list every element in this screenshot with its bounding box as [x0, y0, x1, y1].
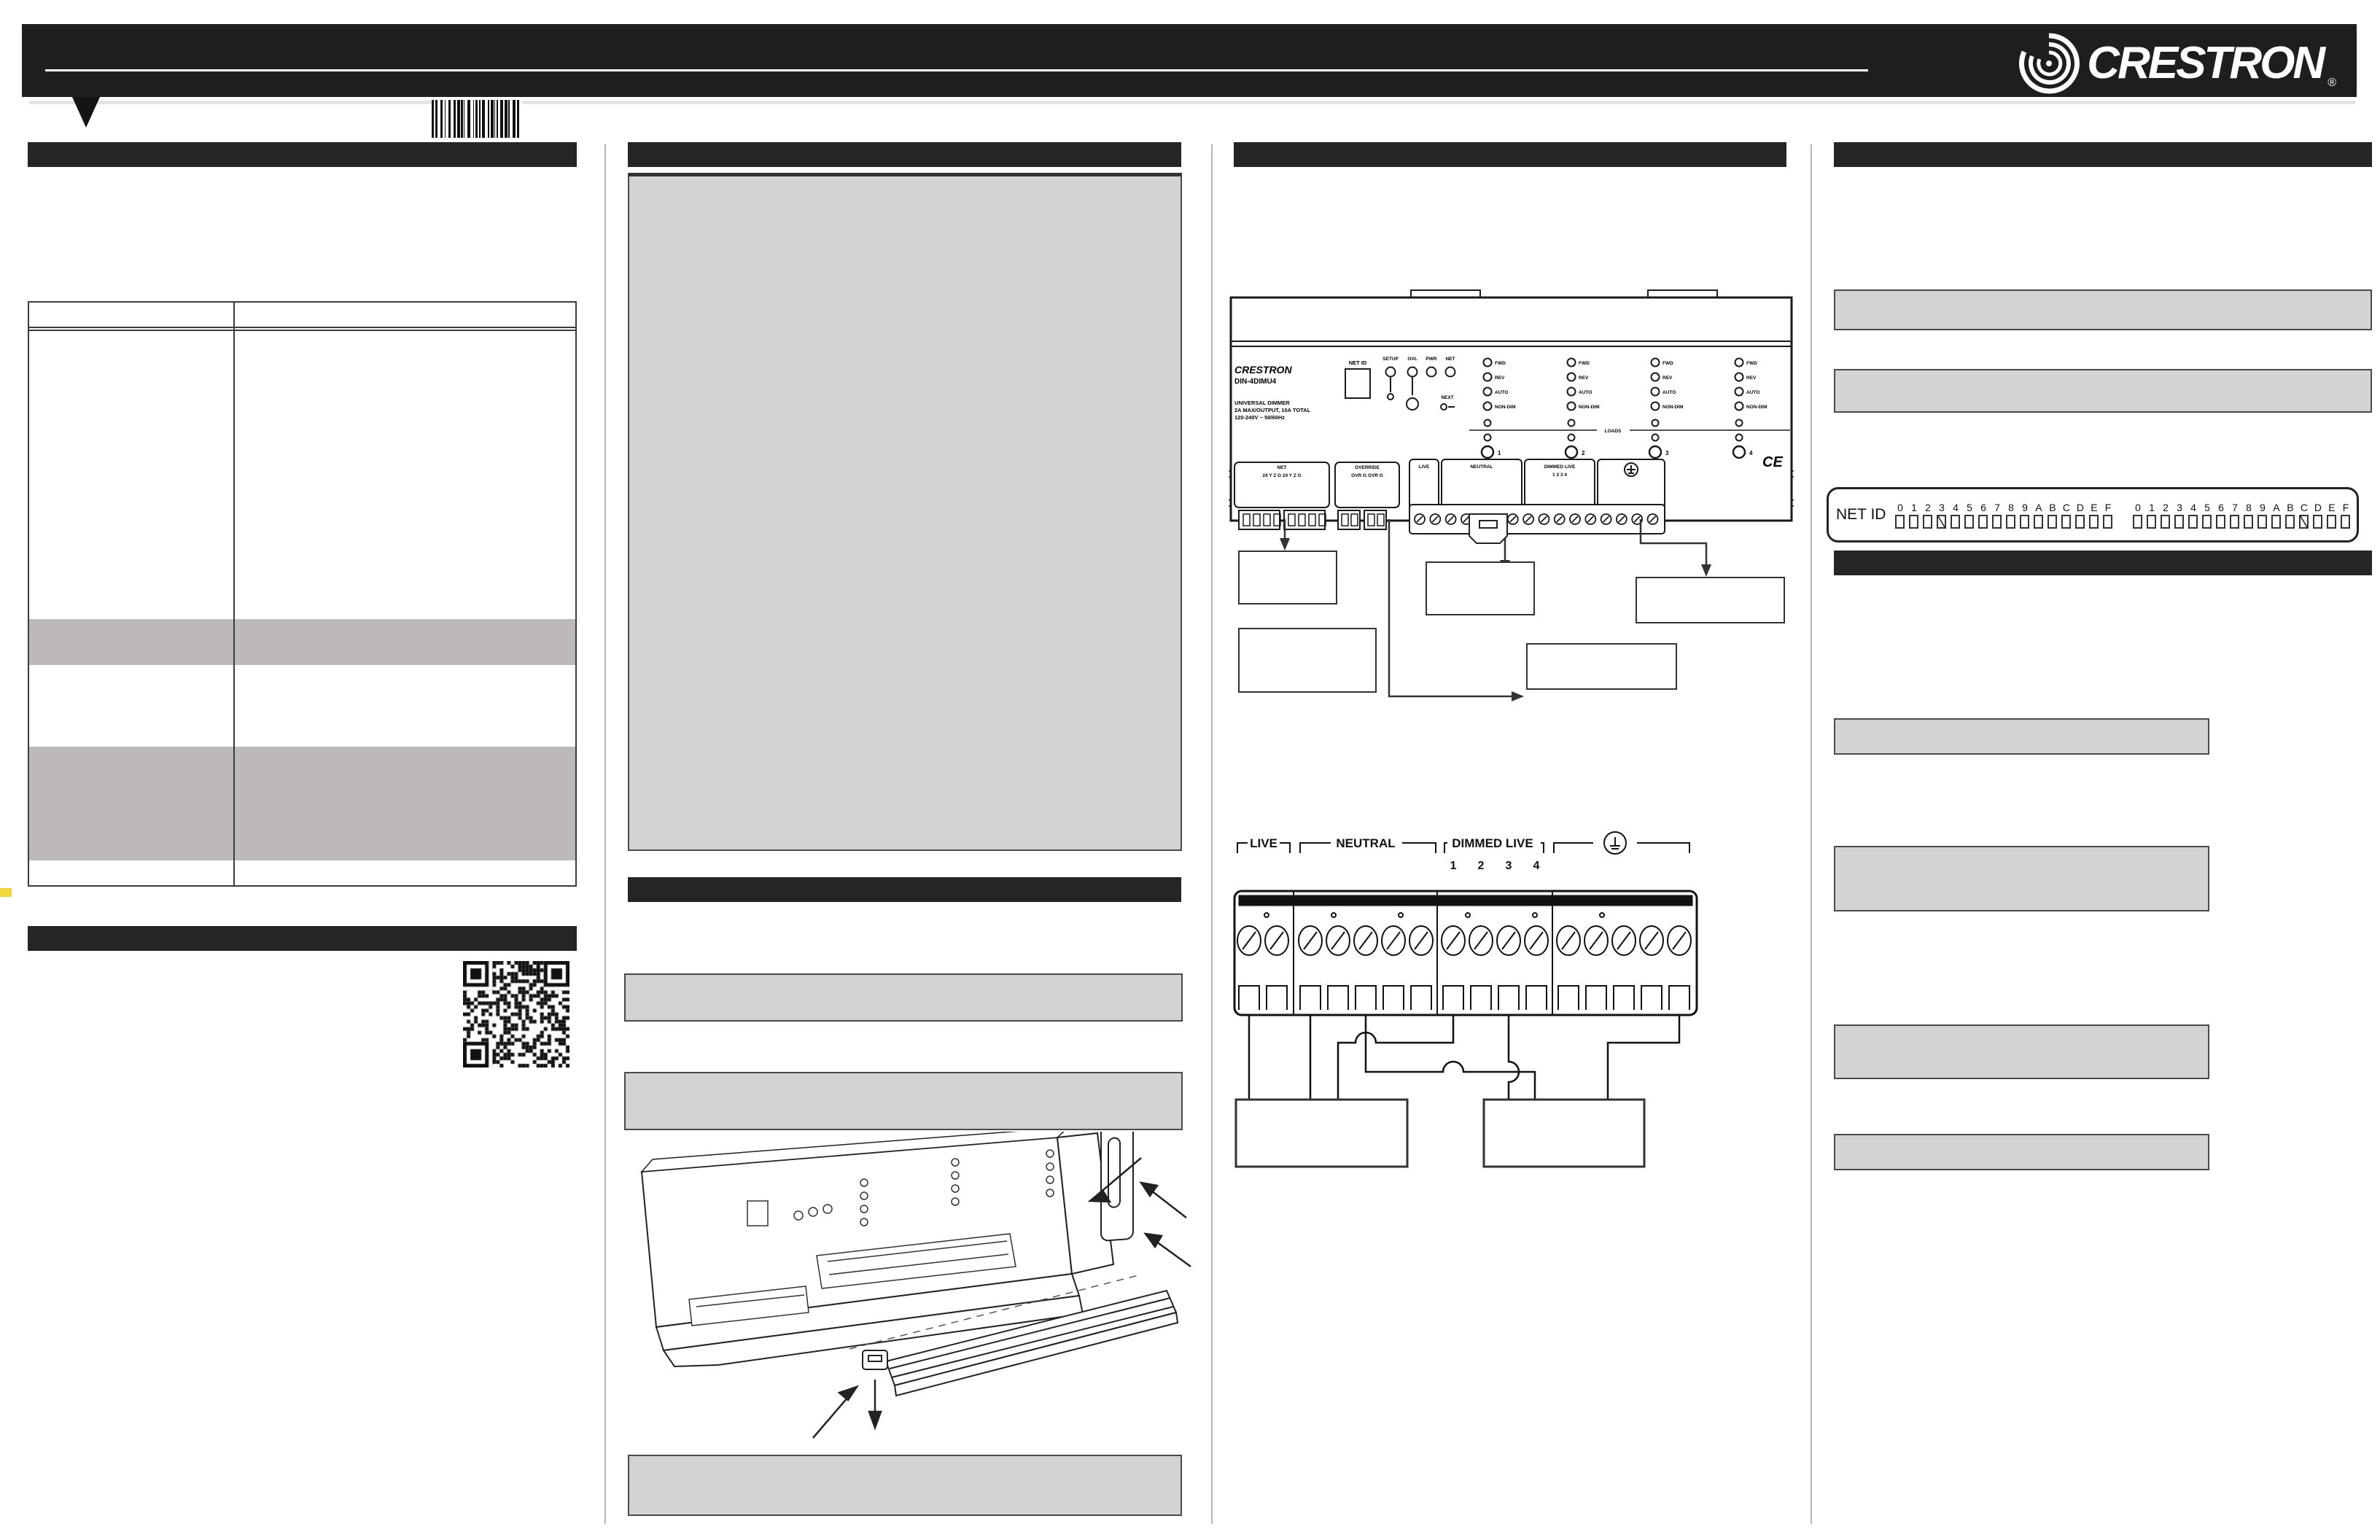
netid-hex-column: E — [2088, 502, 2099, 529]
terminal-live-label: LIVE — [1419, 464, 1430, 470]
netid-checkbox — [2188, 515, 2198, 529]
netid-hex-char: 2 — [2163, 502, 2169, 513]
netid-hex-column: 3 — [2174, 502, 2185, 529]
netid-checkbox — [2257, 515, 2267, 529]
netid-hex-char: 9 — [2022, 502, 2028, 513]
netid-checkbox — [2271, 515, 2281, 529]
netid-hex-column: A — [2033, 502, 2044, 529]
barcode-bar — [519, 100, 522, 138]
netid-checkbox — [2075, 515, 2085, 529]
section-header-installation — [628, 877, 1181, 902]
installation-note-box — [624, 1072, 1183, 1130]
netid-hex-column: 9 — [2019, 502, 2030, 529]
section-header-connections — [1234, 142, 1786, 167]
margin-highlight-mark — [0, 888, 12, 897]
netid-hex-column: D — [2074, 502, 2085, 529]
channel-led-label: REV — [1662, 376, 1673, 381]
terminal-net-pins: 24 Y Z G 24 Y Z G — [1262, 473, 1301, 478]
netid-checkbox — [1937, 515, 1946, 529]
netid-hex-char: C — [2063, 502, 2070, 513]
netid-hex-char: B — [2287, 502, 2293, 513]
channel-led-label: REV — [1495, 376, 1505, 381]
load-box-1 — [1236, 1100, 1407, 1167]
netid-hex-char: 2 — [1925, 502, 1931, 513]
column-divider — [1811, 144, 1812, 1524]
netid-hex-char: F — [2105, 502, 2112, 513]
netid-hex-column: 8 — [2005, 502, 2016, 529]
netid-hex-char: 8 — [2246, 502, 2252, 513]
table-header-row — [29, 303, 575, 331]
netid-hex-column: 4 — [1950, 502, 1961, 529]
section-header-safety — [628, 142, 1181, 167]
netid-checkbox — [1964, 515, 1974, 529]
netid-checkbox — [2341, 515, 2350, 529]
callout-box-mains — [1426, 561, 1535, 615]
channel-led-label: AUTO — [1579, 390, 1592, 395]
netid-checkbox — [2133, 515, 2142, 529]
faded-subtitle-line — [29, 101, 2355, 104]
netid-checkbox — [2006, 515, 2015, 529]
channel-led-label: NON-DIM — [1746, 405, 1767, 410]
section-header-troubleshooting — [1834, 551, 2372, 575]
netid-checkbox — [2299, 515, 2309, 529]
netid-hex-char: 1 — [2149, 502, 2155, 513]
terminal-override-label: OVERRIDE — [1355, 465, 1380, 470]
troubleshooting-note-box — [1834, 846, 2209, 911]
channel-number: 3 — [1665, 450, 1669, 456]
troubleshooting-note-box — [1834, 1134, 2209, 1170]
led-label-next: NEXT — [1441, 395, 1453, 400]
netid-checkbox — [2161, 515, 2170, 529]
netid-hex-char: 9 — [2260, 502, 2266, 513]
wiring-ch1: 1 — [1450, 860, 1457, 872]
panel-model: DIN-4DIMU4 — [1234, 378, 1277, 386]
column-divider — [604, 144, 606, 1524]
netid-checkbox — [2313, 515, 2322, 529]
channel-led-label: FWD — [1579, 361, 1590, 366]
netid-hex-column: 0 — [2132, 502, 2143, 529]
netid-hex-column: 0 — [1894, 502, 1905, 529]
netid-hex-column: B — [2047, 502, 2058, 529]
panel-netid-label: NET ID — [1349, 359, 1367, 366]
netid-hex-group-1: 0123456789ABCDEF — [1894, 502, 2113, 529]
netid-hex-column: 8 — [2243, 502, 2254, 529]
netid-hex-char: B — [2049, 502, 2056, 513]
netid-checkbox — [2089, 515, 2099, 529]
netid-checkbox — [1992, 515, 2002, 529]
netid-hex-column: 6 — [1977, 502, 1988, 529]
netid-checkbox — [2061, 515, 2071, 529]
channel-led-label: FWD — [1495, 361, 1506, 366]
table-row — [29, 665, 575, 747]
netid-hex-char: 7 — [1994, 502, 2000, 513]
netid-checkbox — [2327, 515, 2336, 529]
netid-hex-char: 3 — [1939, 502, 1945, 513]
terminal-dimmed-numbers: 1 2 3 4 — [1552, 472, 1567, 478]
wiring-dimmedlive-label: DIMMED LIVE — [1452, 836, 1533, 850]
netid-strip-label: NET ID — [1836, 506, 1886, 524]
channel-number: 1 — [1498, 450, 1501, 456]
netid-checkbox — [2202, 515, 2212, 529]
load-wiring-diagram: LIVE NEUTRAL DIMMED LIVE 1 2 3 4 — [1229, 824, 1739, 1189]
netid-hex-column: 7 — [1991, 502, 2002, 529]
setup-note-box — [1834, 289, 2372, 330]
ce-mark: CE — [1762, 454, 1783, 470]
netid-hex-char: 0 — [1897, 502, 1903, 513]
barcode — [432, 100, 577, 138]
netid-hex-column: C — [2298, 502, 2309, 529]
netid-hex-column: 1 — [1908, 502, 1919, 529]
channel-led-label: AUTO — [1662, 390, 1676, 395]
crestron-wordmark: CRESTRON — [2087, 33, 2323, 94]
netid-rotary-switch — [1345, 369, 1370, 398]
table-row — [29, 619, 575, 665]
section-header-resources — [28, 926, 577, 951]
netid-hex-char: D — [2314, 502, 2322, 513]
netid-hex-char: A — [2035, 502, 2042, 513]
setup-note-box — [1834, 369, 2372, 413]
callout-box-net — [1238, 551, 1337, 604]
netid-hex-column: 1 — [2146, 502, 2157, 529]
channel-led-label: NON-DIM — [1495, 405, 1516, 410]
wiring-ch4: 4 — [1533, 860, 1540, 872]
netid-hex-char: E — [2328, 502, 2335, 513]
netid-hex-column: F — [2340, 502, 2351, 529]
panel-line2: 2A MAX/OUTPUT, 10A TOTAL — [1234, 407, 1311, 413]
terminal-dimmedlive-label: DIMMED LIVE — [1544, 464, 1576, 470]
netid-checkbox — [1978, 515, 1988, 529]
channel-led-label: AUTO — [1495, 390, 1508, 395]
netid-checkbox — [1951, 515, 1960, 529]
netid-hex-char: 8 — [2008, 502, 2014, 513]
netid-hex-column: C — [2061, 502, 2072, 529]
terminal-net-label: NET — [1277, 465, 1287, 470]
wiring-ch3: 3 — [1506, 860, 1512, 872]
netid-hex-column: 4 — [2187, 502, 2198, 529]
terminal-neutral-label: NEUTRAL — [1470, 464, 1493, 470]
column-divider — [1211, 144, 1213, 1524]
top-banner: CRESTRON ® — [22, 24, 2357, 97]
netid-hex-column: D — [2312, 502, 2323, 529]
table-row — [29, 331, 575, 619]
table-column-divider — [233, 303, 235, 885]
din-rail-mounting-illustration — [631, 1132, 1196, 1449]
netid-hex-column: 5 — [1964, 502, 1975, 529]
loads-label: LOADS — [1605, 429, 1622, 434]
netid-hex-char: C — [2301, 502, 2308, 513]
netid-hex-column: E — [2326, 502, 2337, 529]
netid-hex-char: 7 — [2232, 502, 2238, 513]
channel-led-label: NON-DIM — [1579, 405, 1600, 410]
netid-hex-char: 0 — [2135, 502, 2141, 513]
netid-hex-char: E — [2091, 502, 2097, 513]
netid-hex-char: 4 — [2190, 502, 2196, 513]
section-header-setup — [1834, 142, 2372, 167]
crestron-logo: CRESTRON ® — [2015, 30, 2336, 97]
netid-checkbox — [1923, 515, 1932, 529]
netid-hex-char: A — [2273, 502, 2279, 513]
netid-hex-column: B — [2284, 502, 2295, 529]
netid-hex-column: 5 — [2201, 502, 2212, 529]
led-label-pwr: PWR — [1426, 357, 1436, 362]
usb-port-icon — [1469, 514, 1507, 543]
netid-hex-group-2: 0123456789ABCDEF — [2132, 502, 2351, 529]
led-label-net: NET — [1446, 357, 1455, 362]
netid-hex-column: 6 — [2215, 502, 2226, 529]
netid-hex-char: 6 — [1980, 502, 1986, 513]
netid-hex-column: F — [2102, 502, 2113, 529]
wiring-ch2: 2 — [1478, 860, 1485, 872]
netid-hex-column: A — [2271, 502, 2282, 529]
netid-checkbox — [2216, 515, 2225, 529]
netid-hex-char: 6 — [2218, 502, 2224, 513]
load-box-2 — [1484, 1100, 1644, 1167]
netid-hex-char: 5 — [1967, 502, 1972, 513]
qr-code — [463, 961, 569, 1067]
registered-trademark: ® — [2327, 77, 2336, 90]
netid-checkbox — [2285, 515, 2295, 529]
installation-note-box — [624, 973, 1183, 1022]
led-label-ovl: OVL — [1407, 357, 1417, 362]
wiring-live-label: LIVE — [1250, 836, 1277, 850]
netid-hex-char: 3 — [2177, 502, 2182, 513]
netid-hex-column: 2 — [2160, 502, 2171, 529]
netid-hex-column: 3 — [1936, 502, 1947, 529]
netid-hex-column: 7 — [2229, 502, 2240, 529]
callout-box-override — [1238, 628, 1377, 693]
panel-brand: CRESTRON — [1234, 364, 1292, 376]
mounting-note-box — [628, 1455, 1182, 1516]
netid-checkbox — [1895, 515, 1905, 529]
netid-checkbox — [2230, 515, 2239, 529]
netid-checkbox — [1909, 515, 1918, 529]
netid-record-strip: NET ID 0123456789ABCDEF 0123456789ABCDEF — [1827, 487, 2359, 542]
terminal-override-pins: OVR G OVR G — [1351, 473, 1383, 478]
netid-checkbox — [2020, 515, 2029, 529]
callout-box-usb — [1526, 643, 1677, 690]
netid-checkbox — [2174, 515, 2184, 529]
safety-notes-block — [628, 173, 1182, 851]
quickstart-guide-page: { "header": { "brand": "CRESTRON", "regi… — [0, 0, 2380, 1540]
led-label-setup: SETUP — [1382, 357, 1399, 362]
channel-led-label: REV — [1579, 376, 1589, 381]
netid-checkbox — [2147, 515, 2156, 529]
callout-box-loads — [1636, 577, 1785, 623]
panel-line3: 120-240V ~ 50/60Hz — [1234, 414, 1285, 421]
channel-led-label: NON-DIM — [1662, 405, 1684, 410]
channel-led-label: AUTO — [1746, 390, 1759, 395]
netid-checkbox — [2103, 515, 2112, 529]
crestron-swirl-icon — [2015, 30, 2082, 97]
front-panel-diagram: CRESTRON DIN-4DIMU4 UNIVERSAL DIMMER 2A … — [1229, 286, 1794, 541]
netid-hex-column: 2 — [1922, 502, 1933, 529]
down-arrow-marker — [72, 97, 100, 128]
netid-hex-column: 9 — [2257, 502, 2268, 529]
section-header-specifications — [28, 142, 577, 167]
channel-led-label: FWD — [1662, 361, 1673, 366]
wiring-neutral-label: NEUTRAL — [1336, 836, 1395, 850]
netid-checkbox — [2047, 515, 2057, 529]
netid-hex-char: 1 — [1911, 502, 1917, 513]
netid-hex-char: F — [2343, 502, 2349, 513]
channel-led-label: REV — [1746, 376, 1757, 381]
panel-line1: UNIVERSAL DIMMER — [1234, 400, 1290, 406]
netid-hex-char: 4 — [1953, 502, 1959, 513]
netid-checkbox — [2244, 515, 2253, 529]
table-row — [29, 747, 575, 860]
channel-led-label: FWD — [1746, 361, 1757, 366]
table-row — [29, 860, 575, 879]
channel-number: 2 — [1582, 450, 1585, 456]
troubleshooting-note-box — [1834, 718, 2209, 755]
channel-number: 4 — [1749, 450, 1753, 456]
netid-hex-char: D — [2077, 502, 2084, 513]
specifications-table — [28, 301, 577, 887]
netid-checkbox — [2034, 515, 2043, 529]
banner-divider-line — [45, 69, 1868, 71]
netid-hex-char: 5 — [2204, 502, 2210, 513]
troubleshooting-note-box — [1834, 1024, 2209, 1079]
